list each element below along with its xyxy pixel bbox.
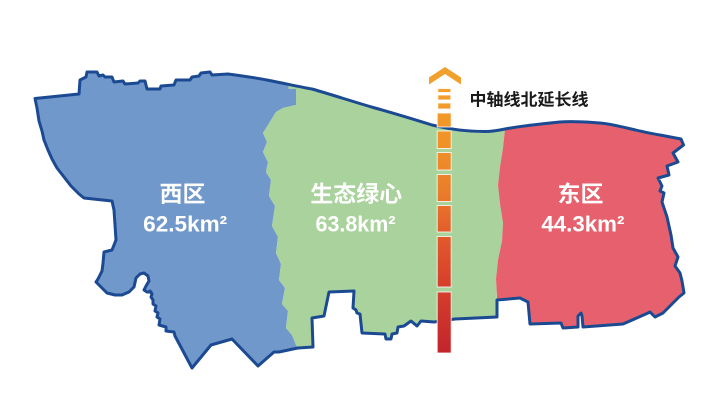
svg-text:62.5km²: 62.5km² [143,211,227,236]
svg-text:63.8km²: 63.8km² [316,211,396,236]
svg-text:44.3km²: 44.3km² [541,211,624,236]
